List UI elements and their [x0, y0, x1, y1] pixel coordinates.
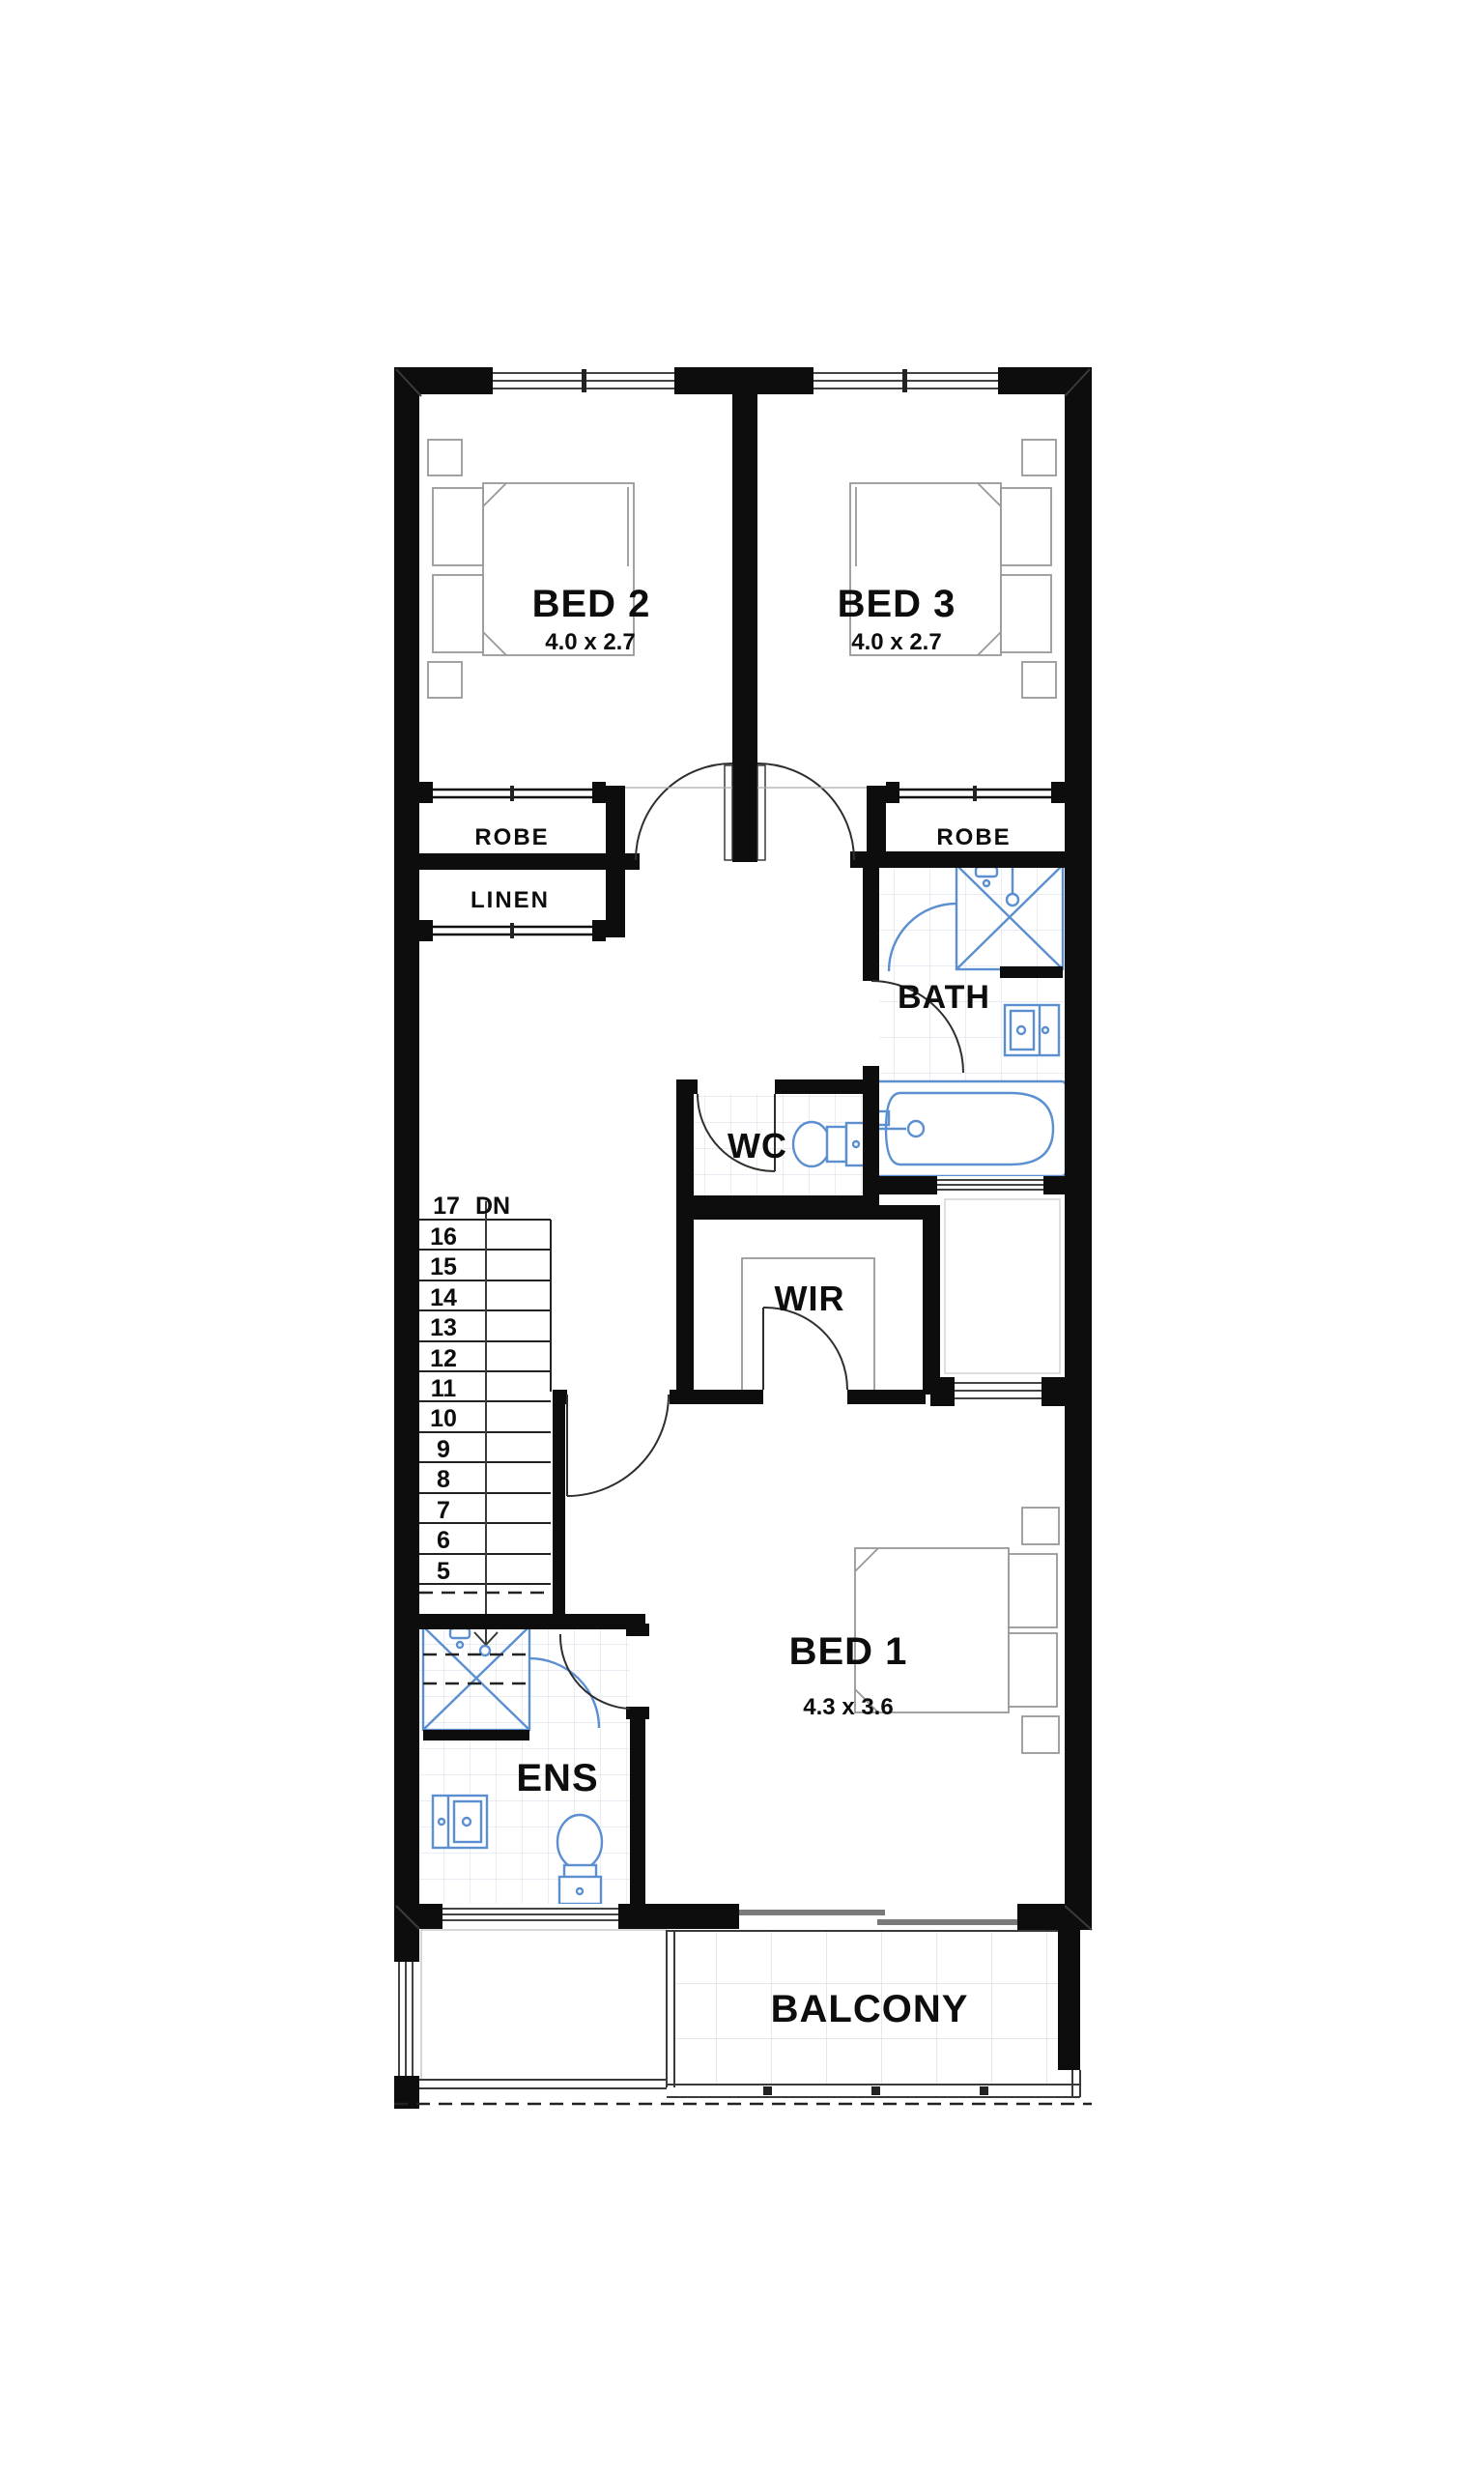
ens-toilet-icon — [557, 1815, 602, 1904]
room-label-robe-left: ROBE — [474, 824, 549, 850]
bath-vanity-icon — [1005, 1005, 1059, 1055]
wc-toilet-icon — [793, 1122, 866, 1166]
floor-plan-page: BED 2 4.0 x 2.7 BED 3 4.0 x 2.7 ROBE LIN… — [0, 0, 1484, 2474]
room-label-linen: LINEN — [471, 887, 550, 913]
stair-tread-number: 5 — [437, 1558, 450, 1585]
balcony-sliding-door — [739, 1913, 1017, 1922]
stair-tread-number: 15 — [430, 1253, 457, 1280]
stair-tread-number: 12 — [430, 1345, 457, 1372]
room-label-wir: WIR — [775, 1279, 845, 1318]
stair-tread-number: 7 — [437, 1497, 450, 1524]
tiled-floors — [419, 868, 1065, 2085]
room-label-bath: BATH — [898, 979, 990, 1016]
stair-tread-number: 8 — [437, 1466, 450, 1493]
stair-tread-number: 13 — [430, 1314, 457, 1341]
stair-top-number: 17 — [433, 1193, 460, 1220]
ens-vanity-icon — [433, 1796, 487, 1848]
room-dims-bed2: 4.0 x 2.7 — [545, 629, 635, 655]
floor-plan-svg: BED 2 4.0 x 2.7 BED 3 4.0 x 2.7 ROBE LIN… — [0, 0, 1484, 2474]
stair-tread-number: 16 — [430, 1223, 457, 1251]
room-label-bed1: BED 1 — [789, 1630, 908, 1673]
bed3-furniture — [850, 440, 1056, 698]
room-label-bed2: BED 2 — [532, 583, 651, 625]
room-label-bed3: BED 3 — [838, 583, 956, 625]
stair-tread-number: 14 — [430, 1284, 457, 1311]
bed2-furniture — [428, 440, 634, 698]
room-label-ens: ENS — [516, 1757, 598, 1799]
stair-direction-label: DN — [475, 1193, 510, 1220]
room-dims-bed1: 4.3 x 3.6 — [803, 1694, 893, 1720]
room-label-balcony: BALCONY — [771, 1988, 969, 2030]
stair-tread-number: 9 — [437, 1436, 450, 1463]
stair-tread-number: 10 — [430, 1405, 457, 1432]
room-label-robe-right: ROBE — [936, 824, 1011, 850]
bathtub-icon — [873, 1081, 1066, 1176]
stair-tread-number: 6 — [437, 1527, 450, 1554]
room-label-wc: WC — [728, 1126, 787, 1165]
room-dims-bed3: 4.0 x 2.7 — [851, 629, 941, 655]
stair-tread-number: 11 — [431, 1375, 457, 1402]
